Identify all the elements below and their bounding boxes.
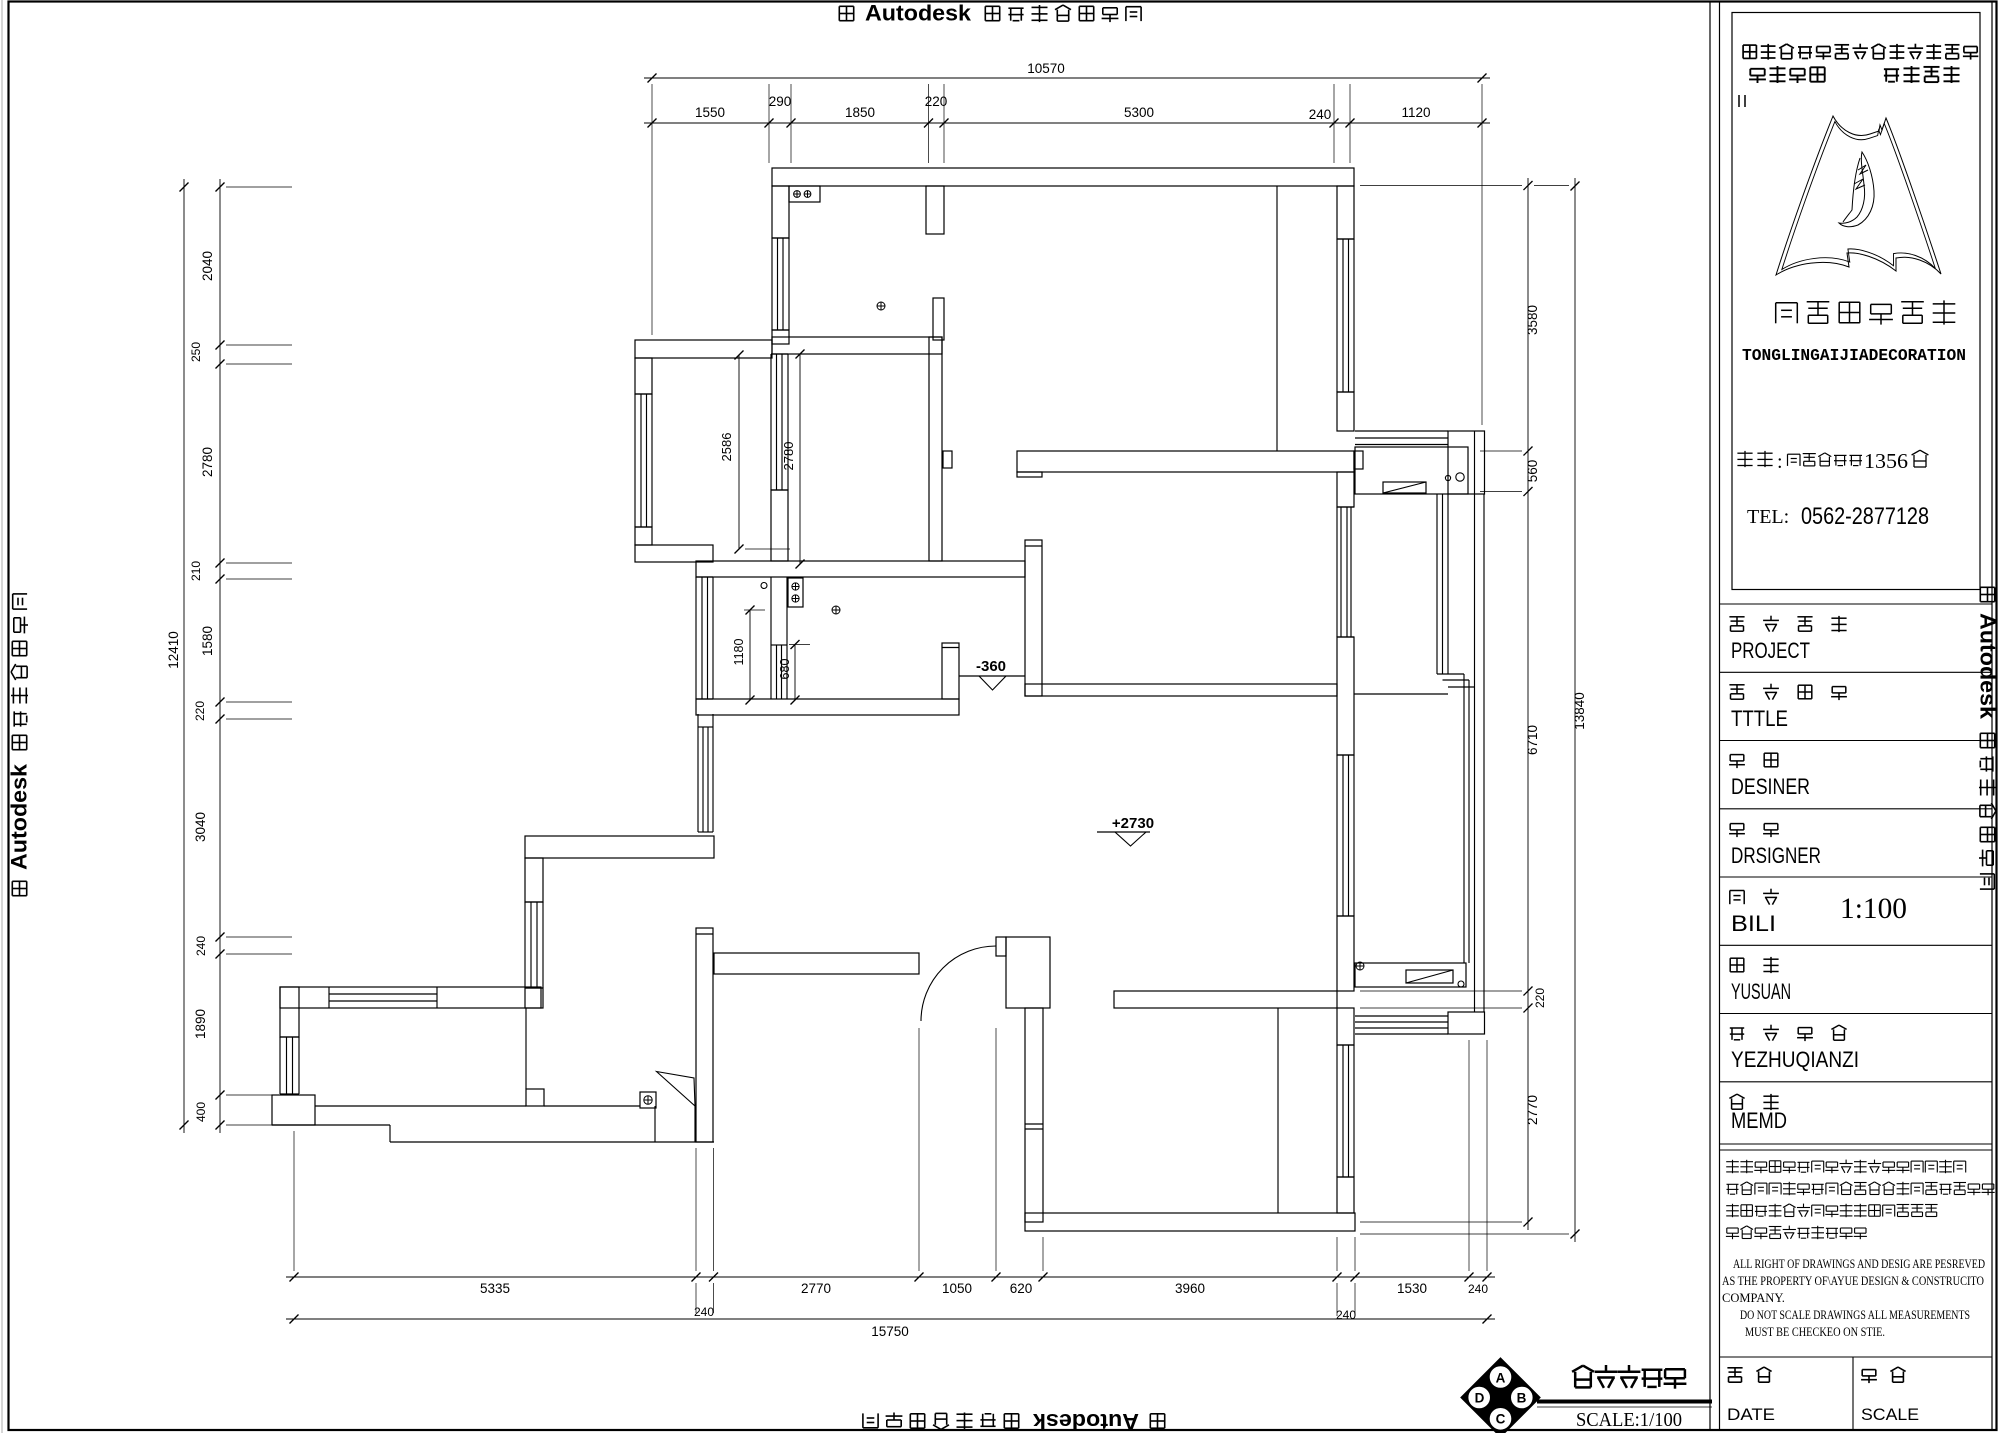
svg-text:YUSUAN: YUSUAN	[1731, 979, 1791, 1004]
svg-text:220: 220	[1533, 988, 1547, 1008]
svg-text:2586: 2586	[719, 433, 734, 462]
svg-text:2040: 2040	[200, 251, 215, 281]
svg-text:SCALE: SCALE	[1861, 1405, 1919, 1424]
svg-text:BILI: BILI	[1731, 911, 1776, 936]
svg-text:1850: 1850	[845, 105, 875, 120]
svg-text:1120: 1120	[1401, 105, 1430, 120]
svg-text:YEZHUQIANZI: YEZHUQIANZI	[1731, 1047, 1859, 1072]
svg-text:SCALE:1/100: SCALE:1/100	[1576, 1409, 1682, 1431]
svg-text:240: 240	[1309, 107, 1332, 122]
svg-text:240: 240	[194, 936, 208, 956]
svg-text:Autodesk: Autodesk	[7, 763, 32, 870]
svg-text:+2730: +2730	[1112, 815, 1154, 832]
svg-text::: :	[1777, 451, 1783, 473]
svg-text:DATE: DATE	[1727, 1405, 1775, 1424]
svg-text:A: A	[1496, 1371, 1506, 1386]
svg-text:240: 240	[1468, 1282, 1488, 1296]
svg-text:COMPANY.: COMPANY.	[1722, 1291, 1785, 1305]
svg-text:ALL RIGHT OF DRAWINGS AND DESI: ALL RIGHT OF DRAWINGS AND DESIG ARE PESR…	[1733, 1257, 1985, 1271]
svg-text:2780: 2780	[200, 447, 215, 477]
svg-text:1050: 1050	[942, 1281, 972, 1296]
svg-text:2780: 2780	[781, 442, 796, 471]
svg-text:290: 290	[769, 94, 792, 109]
svg-text:2770: 2770	[801, 1281, 831, 1296]
svg-text:680: 680	[778, 659, 792, 680]
svg-text:TEL:: TEL:	[1747, 506, 1789, 528]
svg-text:-360: -360	[976, 658, 1006, 675]
svg-text:1550: 1550	[695, 105, 725, 120]
svg-text:6710: 6710	[1525, 725, 1540, 755]
svg-text:MEMD: MEMD	[1731, 1108, 1787, 1133]
svg-text:DRSIGNER: DRSIGNER	[1731, 843, 1821, 868]
svg-text:560: 560	[1525, 460, 1540, 483]
svg-text:5335: 5335	[480, 1281, 510, 1296]
svg-text:1530: 1530	[1397, 1281, 1427, 1296]
svg-text:240: 240	[1336, 1308, 1356, 1322]
svg-text:0562-2877128: 0562-2877128	[1801, 503, 1929, 530]
svg-text:Autodesk: Autodesk	[1976, 613, 2000, 720]
svg-text:220: 220	[193, 701, 207, 721]
svg-text:C: C	[1496, 1412, 1506, 1427]
svg-text:10570: 10570	[1027, 61, 1065, 76]
svg-text:D: D	[1475, 1391, 1485, 1406]
svg-text:210: 210	[189, 561, 203, 581]
svg-text:12410: 12410	[166, 631, 181, 669]
svg-text:1580: 1580	[200, 626, 215, 656]
svg-text:AS THE PROPERTY OF\AYUE DESIGN: AS THE PROPERTY OF\AYUE DESIGN & CONSTRU…	[1722, 1274, 1984, 1288]
svg-text:5300: 5300	[1124, 105, 1154, 120]
svg-text:1356: 1356	[1864, 449, 1908, 473]
svg-text:Autodesk: Autodesk	[865, 1, 972, 26]
svg-text:1890: 1890	[193, 1009, 208, 1039]
svg-text:3040: 3040	[193, 812, 208, 842]
svg-text:B: B	[1517, 1391, 1527, 1406]
svg-text:3960: 3960	[1175, 1281, 1205, 1296]
svg-text:3580: 3580	[1525, 305, 1540, 335]
svg-text:2770: 2770	[1525, 1095, 1540, 1125]
svg-text:13840: 13840	[1572, 692, 1587, 730]
svg-text:DO NOT SCALE DRAWINGS ALL MEAS: DO NOT SCALE DRAWINGS ALL MEASUREMENTS	[1740, 1308, 1970, 1322]
svg-text:250: 250	[189, 342, 203, 362]
svg-text:TTTLE: TTTLE	[1731, 706, 1788, 731]
svg-text:MUST BE CHECKEO ON STIE.: MUST BE CHECKEO ON STIE.	[1745, 1325, 1885, 1339]
svg-text:15750: 15750	[871, 1324, 909, 1339]
svg-text:620: 620	[1010, 1281, 1033, 1296]
svg-text:TONGLINGAIJIADECORATION: TONGLINGAIJIADECORATION	[1742, 347, 1966, 366]
svg-text:400: 400	[194, 1102, 208, 1122]
svg-text:1:100: 1:100	[1840, 892, 1907, 925]
svg-text:PROJECT: PROJECT	[1731, 638, 1810, 663]
svg-text:1180: 1180	[732, 639, 746, 666]
svg-text:240: 240	[694, 1305, 714, 1319]
svg-text:Autodesk: Autodesk	[1032, 1409, 1139, 1433]
svg-text:DESINER: DESINER	[1731, 774, 1810, 799]
